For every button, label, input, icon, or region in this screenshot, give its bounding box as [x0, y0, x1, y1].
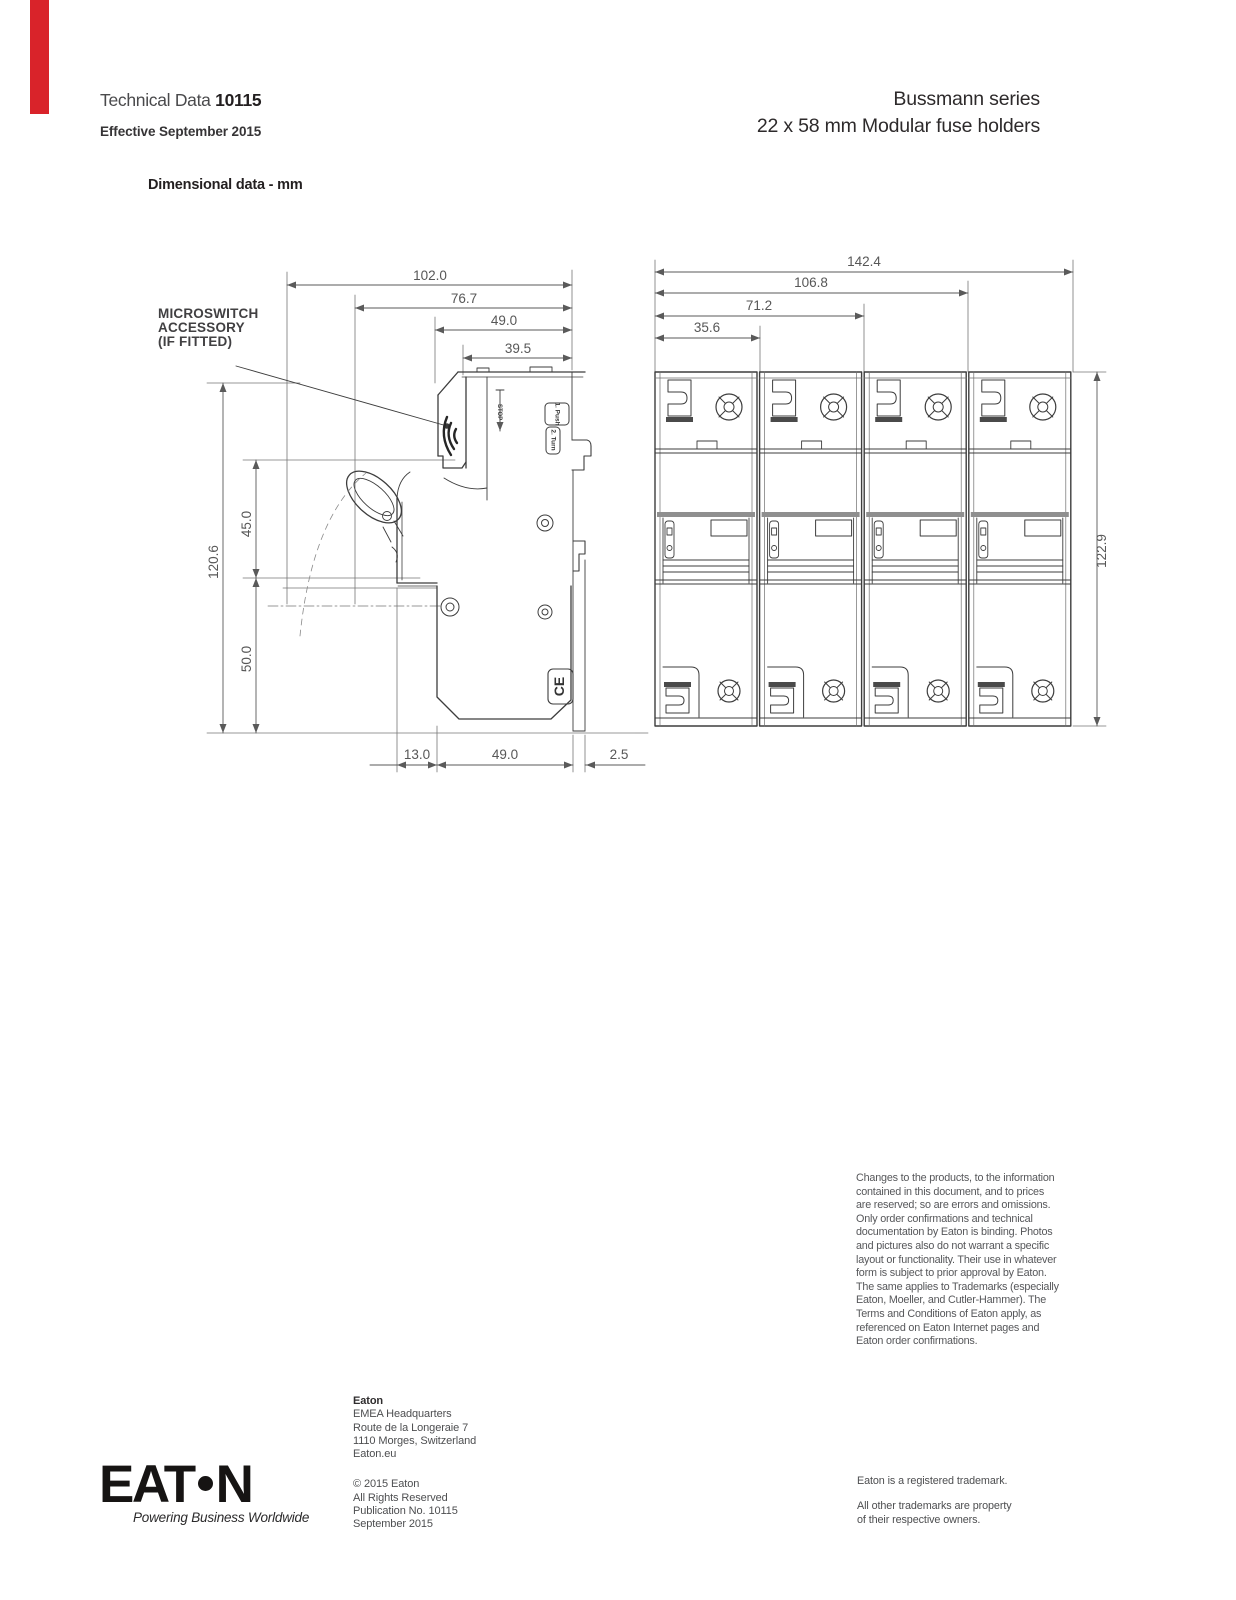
fuse-module: [760, 372, 862, 726]
front-view-drawing: 142.4 106.8 71.2 35.6 122.9: [655, 254, 1109, 726]
dim-label: 35.6: [694, 320, 720, 335]
eaton-logo-dot-icon: [198, 1476, 213, 1491]
address-line: Eaton.eu: [353, 1448, 476, 1461]
trademark-line: of their respective owners.: [857, 1513, 1012, 1527]
stop-text: STOP: [496, 404, 502, 420]
copyright-line: Publication No. 10115: [353, 1505, 476, 1518]
terminal-screw-bottom: [718, 680, 740, 702]
doc-title: Technical Data 10115: [100, 88, 261, 114]
dim-label: 76.7: [451, 291, 477, 306]
address-line: EMEA Headquarters: [353, 1408, 476, 1421]
dim-label: 106.8: [794, 275, 828, 290]
legal-line: referenced on Eaton Internet pages and: [856, 1322, 1106, 1336]
series-name: Bussmann series: [757, 86, 1040, 113]
section-title: Dimensional data - mm: [148, 177, 303, 193]
dim-label: 39.5: [505, 341, 531, 356]
dim-label: 13.0: [404, 747, 430, 762]
fuse-carrier-handle: [337, 462, 410, 562]
eaton-tagline: Powering Business Worldwide: [133, 1510, 309, 1525]
side-body-outline: CE STOP 1. Push 2. Turn: [300, 367, 591, 731]
legal-line: Changes to the products, to the informat…: [856, 1172, 1106, 1186]
operating-labels: 1. Push 2. Turn: [545, 402, 569, 454]
datasheet-page: { "accent": { "edge_bar_color": "#d9232a…: [0, 0, 1236, 1600]
dim-label: 49.0: [492, 747, 518, 762]
microswitch-arcs: [444, 417, 457, 455]
push-label: 1. Push: [553, 402, 560, 425]
ce-mark-text: CE: [551, 677, 567, 696]
wire-clamp-top: [668, 380, 691, 416]
trademark-block: Eaton is a registered trademark. All oth…: [857, 1474, 1012, 1527]
front-extension-lines: [655, 260, 1106, 726]
ce-mark: CE: [548, 669, 573, 704]
legal-line: Eaton order confirmations.: [856, 1335, 1106, 1349]
eaton-logo-text: EATN: [99, 1455, 251, 1514]
side-dimension-lines: [223, 285, 645, 765]
side-extension-lines: [207, 270, 648, 772]
legal-line: documentation by Eaton is binding. Photo…: [856, 1226, 1106, 1240]
eaton-logo: EATN: [99, 1462, 251, 1508]
terminal-screw-top: [716, 394, 742, 420]
company-name: Eaton: [353, 1395, 476, 1408]
dim-label: 71.2: [746, 298, 772, 313]
trademark-line: Eaton is a registered trademark.: [857, 1474, 1012, 1488]
wire-clamp-bottom: [666, 688, 689, 713]
product-name: 22 x 58 mm Modular fuse holders: [757, 113, 1040, 140]
fuse-module: [864, 372, 966, 726]
legal-line: and pictures also do not warrant a speci…: [856, 1240, 1106, 1254]
fuse-module: [655, 372, 757, 726]
dim-label: 50.0: [239, 646, 254, 672]
stop-pin-marking: STOP: [496, 390, 504, 431]
effective-date: Effective September 2015: [100, 120, 261, 144]
status-indicator-slot: [665, 521, 674, 558]
legal-line: form is subject to prior approval by Eat…: [856, 1267, 1106, 1281]
turn-label: 2. Turn: [549, 429, 556, 450]
copyright-line: © 2015 Eaton: [353, 1478, 476, 1491]
trademark-line: All other trademarks are property: [857, 1499, 1012, 1513]
fuse-module: [969, 372, 1071, 726]
copyright-line: September 2015: [353, 1518, 476, 1531]
legal-line: Terms and Conditions of Eaton apply, as: [856, 1308, 1106, 1322]
handle-swing-arc: [300, 473, 366, 636]
callout-line: ACCESSORY: [158, 320, 245, 335]
front-dimension-lines: [655, 272, 1097, 726]
footer-address-block: Eaton EMEA Headquarters Route de la Long…: [353, 1395, 476, 1532]
legal-line: Eaton, Moeller, and Cutler-Hammer). The: [856, 1294, 1106, 1308]
microswitch-callout: MICROSWITCH ACCESSORY (IF FITTED): [158, 306, 450, 429]
callout-line: (IF FITTED): [158, 334, 232, 349]
dim-label: 49.0: [491, 313, 517, 328]
address-line: Route de la Longeraie 7: [353, 1422, 476, 1435]
header-left: Technical Data 10115 Effective September…: [100, 88, 261, 144]
side-body-holes: [441, 515, 553, 619]
page-edge-accent-bar: [30, 0, 49, 114]
legal-line: Only order confirmations and technical: [856, 1213, 1106, 1227]
legal-line: contained in this document, and to price…: [856, 1186, 1106, 1200]
address-line: 1110 Morges, Switzerland: [353, 1435, 476, 1448]
label-window: [711, 520, 747, 536]
dim-label: 142.4: [847, 254, 881, 269]
legal-disclaimer: Changes to the products, to the informat…: [856, 1172, 1106, 1349]
doc-number: 10115: [215, 90, 261, 110]
dim-label: 122.9: [1094, 534, 1109, 568]
dim-label: 102.0: [413, 268, 447, 283]
dim-label: 120.6: [206, 545, 221, 579]
header-right: Bussmann series 22 x 58 mm Modular fuse …: [757, 86, 1040, 140]
dimensional-drawings: 102.0 76.7 49.0 39.5 120.6 45.0 50.0 13.…: [140, 248, 1140, 793]
legal-line: The same applies to Trademarks (especial…: [856, 1281, 1106, 1295]
callout-leader-line: [236, 366, 447, 426]
doc-type: Technical Data: [100, 90, 211, 110]
legal-line: layout or functionality. Their use in wh…: [856, 1254, 1106, 1268]
copyright-block: © 2015 Eaton All Rights Reserved Publica…: [353, 1478, 476, 1531]
side-view-drawing: 102.0 76.7 49.0 39.5 120.6 45.0 50.0 13.…: [158, 268, 648, 772]
legal-line: are reserved; so are errors and omission…: [856, 1199, 1106, 1213]
dim-label: 2.5: [610, 747, 629, 762]
copyright-line: All Rights Reserved: [353, 1492, 476, 1505]
dim-label: 45.0: [239, 511, 254, 537]
callout-line: MICROSWITCH: [158, 306, 258, 321]
